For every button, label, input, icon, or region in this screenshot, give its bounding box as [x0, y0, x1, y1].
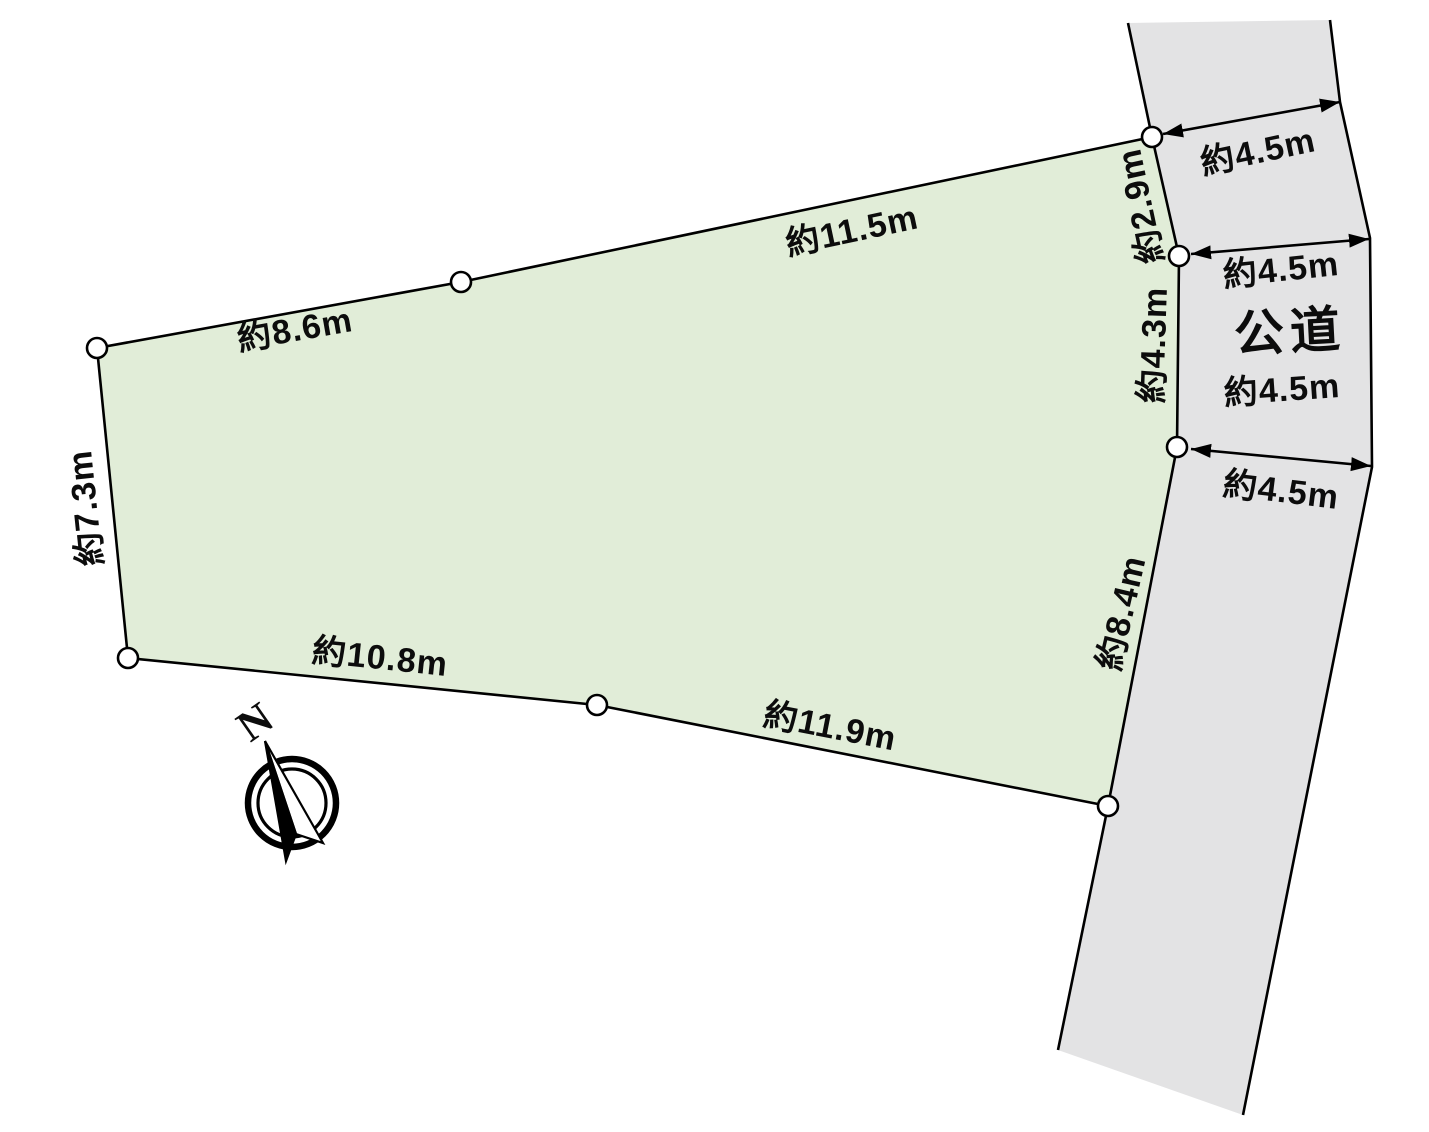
vertex-marker [1098, 796, 1118, 816]
dimension-label-left-edge: 約7.3m [61, 448, 111, 568]
compass-north-label: N [228, 693, 282, 751]
vertex-marker [1142, 127, 1162, 147]
road-name-label: 公道 [1233, 301, 1348, 363]
vertex-marker [1167, 437, 1187, 457]
vertex-marker [451, 272, 471, 292]
vertex-marker [87, 338, 107, 358]
road-width-label-center: 約4.5m [1223, 367, 1342, 413]
site-plan-canvas: 約8.6m 約11.5m 約7.3m 約10.8m 約11.9m 約2.9m 約… [0, 0, 1429, 1132]
dimension-label-right-middle-edge: 約4.3m [1133, 286, 1175, 404]
vertex-marker [118, 648, 138, 668]
vertex-marker [1169, 246, 1189, 266]
vertex-marker [587, 695, 607, 715]
compass-icon: N [228, 693, 336, 861]
land-plot-diagram: 約8.6m 約11.5m 約7.3m 約10.8m 約11.9m 約2.9m 約… [0, 0, 1429, 1132]
